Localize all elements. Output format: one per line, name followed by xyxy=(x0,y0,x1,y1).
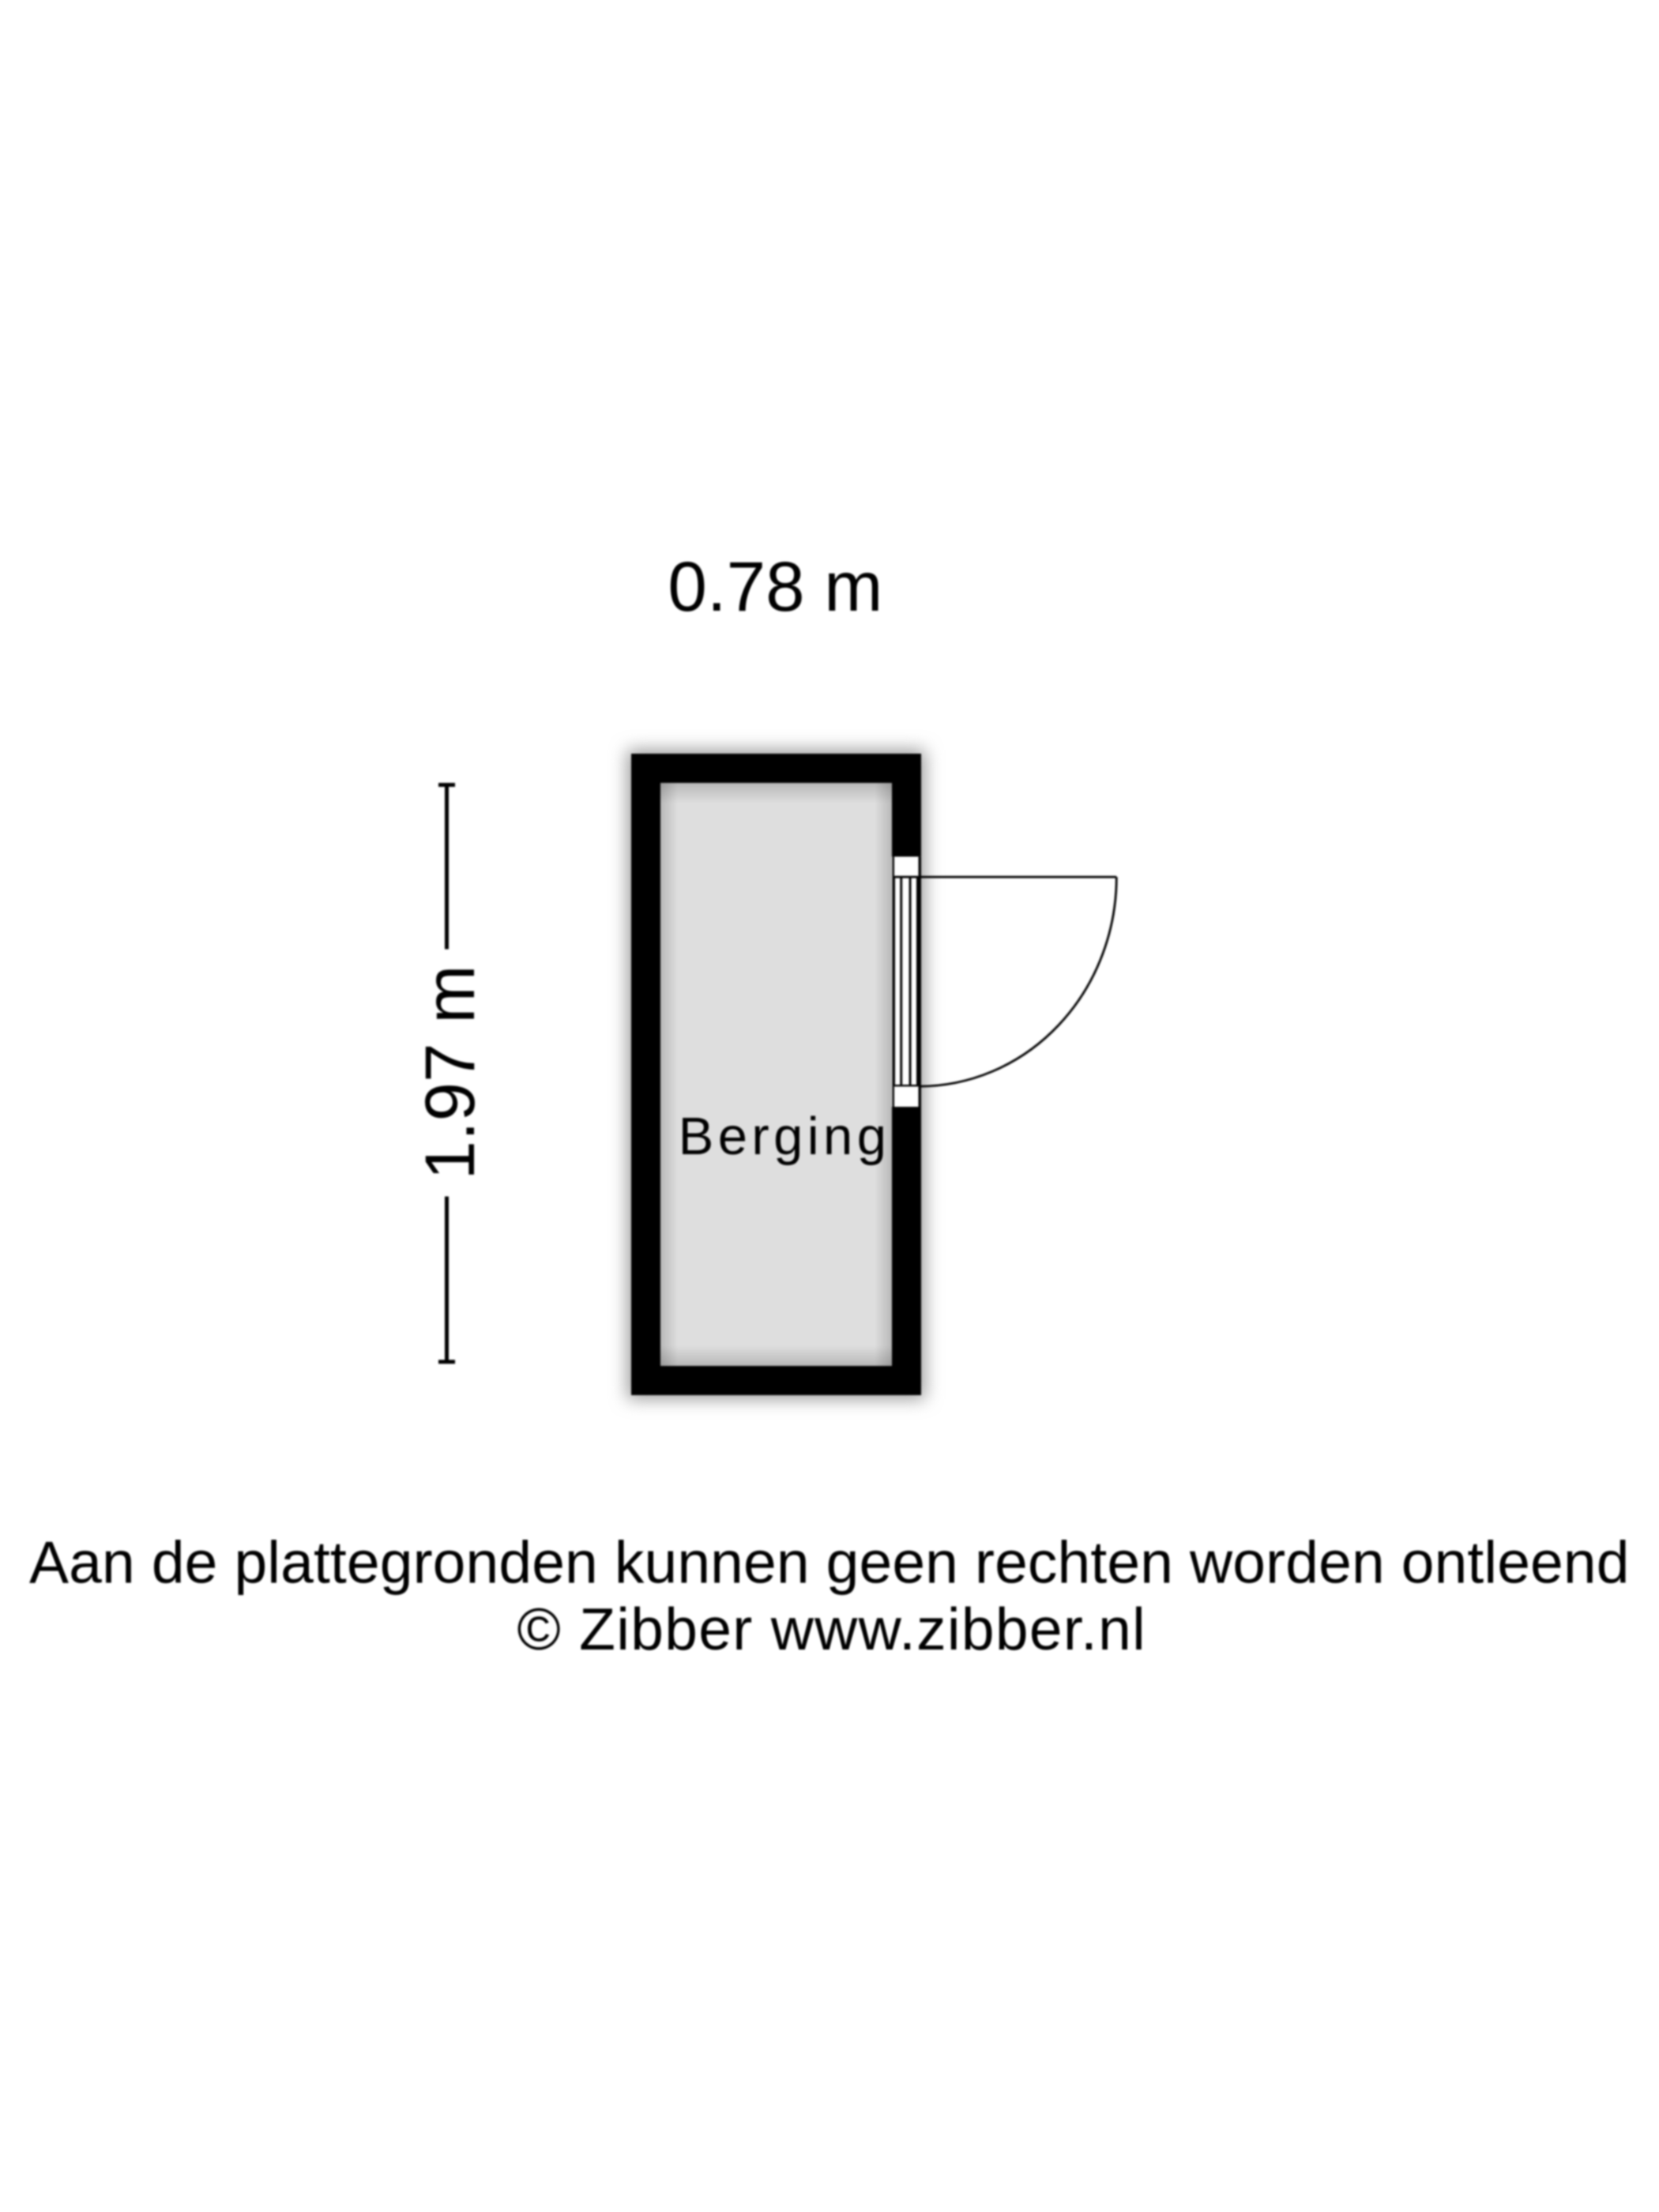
svg-text:© Zibber www.zibber.nl: © Zibber www.zibber.nl xyxy=(517,1596,1146,1662)
svg-text:Berging: Berging xyxy=(679,1107,891,1166)
svg-text:Aan de plattegronden kunnen ge: Aan de plattegronden kunnen geen rechten… xyxy=(29,1529,1630,1596)
svg-text:0.78 m: 0.78 m xyxy=(668,547,882,626)
svg-text:1.97 m: 1.97 m xyxy=(410,965,489,1179)
